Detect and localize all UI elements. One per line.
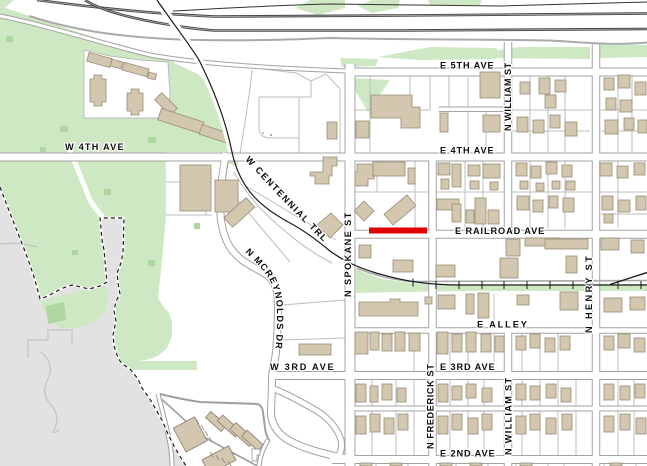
svg-text:W 4TH AVE: W 4TH AVE <box>65 142 125 152</box>
svg-text:E 5TH AVE: E 5TH AVE <box>440 61 495 71</box>
svg-text:N SPOKANE ST: N SPOKANE ST <box>343 211 353 297</box>
svg-text:E 3RD AVE: E 3RD AVE <box>440 362 496 372</box>
svg-text:E 4TH AVE: E 4TH AVE <box>440 146 495 156</box>
svg-text:N WILLIAM ST: N WILLIAM ST <box>503 62 513 131</box>
svg-text:E RAILROAD AVE: E RAILROAD AVE <box>455 226 545 236</box>
svg-text:E 2ND AVE: E 2ND AVE <box>440 449 496 459</box>
svg-text:N FREDERICK ST: N FREDERICK ST <box>426 364 436 449</box>
svg-text:N WILLIAM ST: N WILLIAM ST <box>504 377 514 455</box>
svg-text:N HENRY ST: N HENRY ST <box>584 254 594 333</box>
svg-text:W 3RD AVE: W 3RD AVE <box>270 362 335 372</box>
svg-text:E ALLEY: E ALLEY <box>477 320 529 330</box>
